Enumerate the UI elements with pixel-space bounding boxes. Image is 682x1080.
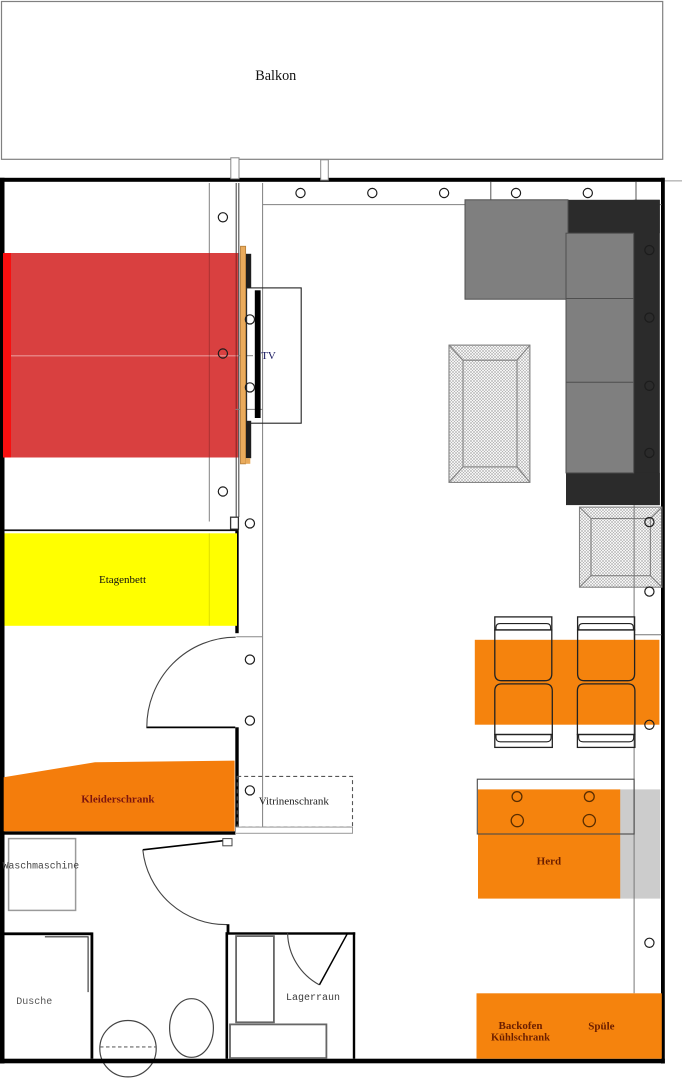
svg-text:Herd: Herd xyxy=(537,855,561,867)
svg-text:Etagenbett: Etagenbett xyxy=(99,574,146,586)
svg-text:Kleiderschrank: Kleiderschrank xyxy=(81,793,155,805)
svg-text:Backofen: Backofen xyxy=(499,1020,543,1032)
svg-text:Vitrinenschrank: Vitrinenschrank xyxy=(259,796,330,808)
svg-text:Balkon: Balkon xyxy=(255,68,296,84)
svg-text:Dusche: Dusche xyxy=(16,996,52,1008)
svg-text:Spüle: Spüle xyxy=(588,1020,614,1032)
svg-text:Lagerraun: Lagerraun xyxy=(286,993,340,1004)
svg-text:TV: TV xyxy=(261,350,276,362)
svg-text:Waschmaschine: Waschmaschine xyxy=(3,860,80,871)
svg-text:Kühlschrank: Kühlschrank xyxy=(491,1033,550,1044)
